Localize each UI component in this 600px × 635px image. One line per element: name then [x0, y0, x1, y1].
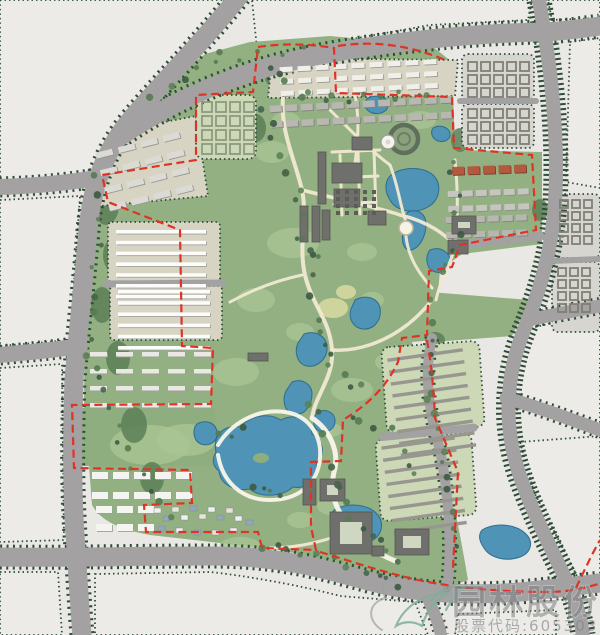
site-plan-image: ® 园林股份 股票代码:605303	[0, 0, 600, 635]
watermark-stock-code: 股票代码:605303	[454, 617, 598, 635]
master-plan-svg: ® 园林股份 股票代码:605303	[0, 0, 600, 635]
registered-mark: ®	[442, 584, 452, 595]
